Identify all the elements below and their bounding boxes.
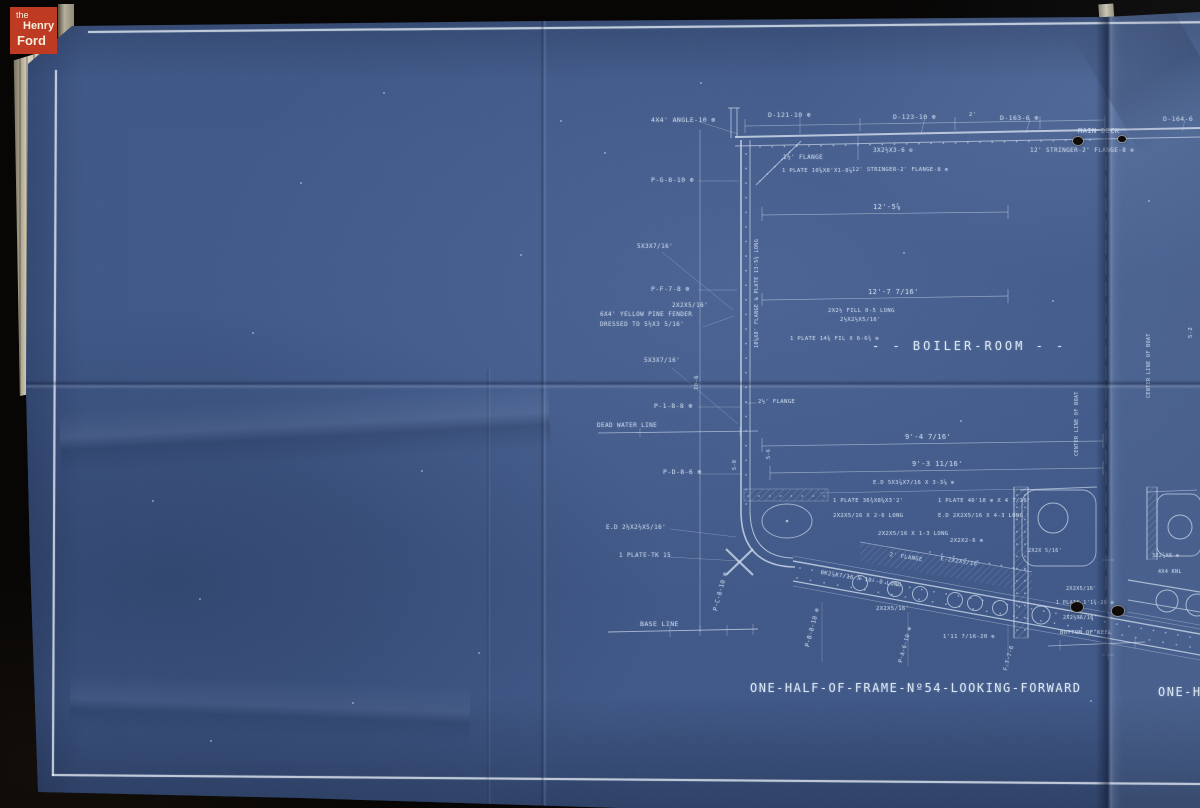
logo-henry: Henry bbox=[23, 20, 54, 32]
dust-speck bbox=[383, 92, 385, 94]
dust-speck bbox=[300, 182, 302, 184]
dust-speck bbox=[421, 470, 423, 472]
dust-speck bbox=[478, 652, 480, 654]
dust-speck bbox=[352, 702, 354, 704]
blueprint-sheet: 4X4' ANGLE-10 ⊕D-121-10 ⊕D-123-10 ⊕D-163… bbox=[0, 0, 1200, 808]
dust-speck bbox=[903, 252, 905, 254]
henry-ford-logo: the Henry Ford bbox=[10, 7, 57, 54]
dust-speck bbox=[560, 120, 562, 122]
dust-speck bbox=[210, 740, 212, 742]
dust-speck bbox=[252, 332, 254, 334]
paper-grain bbox=[0, 0, 1200, 808]
dust-speck bbox=[1148, 200, 1150, 202]
logo-the: the bbox=[16, 10, 29, 20]
dust-speck bbox=[520, 254, 522, 256]
photo-backdrop: 4X4' ANGLE-10 ⊕D-121-10 ⊕D-123-10 ⊕D-163… bbox=[0, 0, 1200, 808]
logo-ford: Ford bbox=[17, 33, 46, 48]
paper-hole bbox=[1073, 137, 1083, 145]
paper-hole bbox=[1071, 602, 1083, 612]
dust-speck bbox=[700, 82, 702, 84]
dust-speck bbox=[960, 420, 962, 422]
dust-speck bbox=[1052, 300, 1054, 302]
dust-speck bbox=[199, 598, 201, 600]
paper-hole bbox=[1112, 606, 1124, 616]
dust-speck bbox=[152, 500, 154, 502]
dust-speck bbox=[604, 152, 606, 154]
dust-speck bbox=[1090, 700, 1092, 702]
